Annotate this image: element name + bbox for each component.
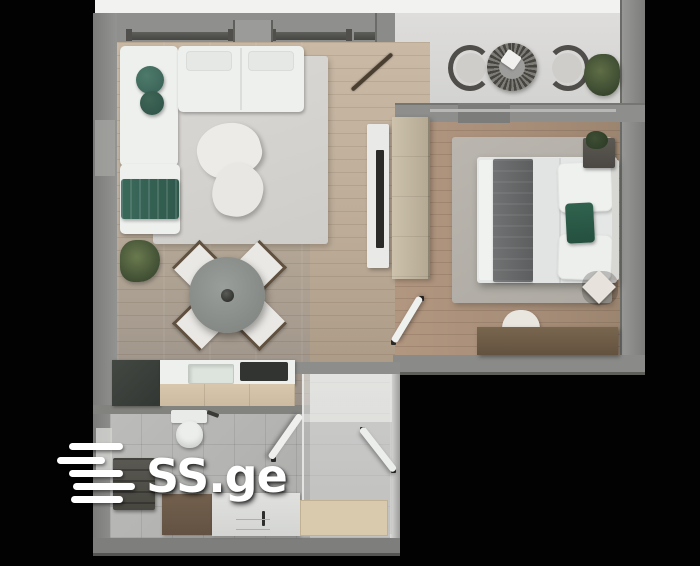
foot-bench <box>477 327 618 355</box>
watermark-text: SS.ge <box>146 449 287 503</box>
wall-bottom <box>93 538 400 556</box>
green-cushion <box>136 66 164 94</box>
window-post <box>126 29 132 41</box>
sofa-cushion <box>248 51 294 71</box>
window-sill-mid <box>276 32 348 40</box>
tv-screen <box>376 150 384 248</box>
wall-right <box>620 0 645 372</box>
lounge-chair-right-seat <box>552 53 582 83</box>
wall-balcony-step <box>458 103 510 123</box>
speed-lines-icon <box>69 470 123 477</box>
headboard <box>612 160 619 280</box>
nightstand-plant <box>586 131 608 149</box>
floor-plan-render: SS.ge <box>0 0 700 566</box>
radiator-panel <box>95 120 115 176</box>
cooktop <box>240 362 288 381</box>
wall-balcony-bottom <box>395 103 645 122</box>
shower-tray <box>300 500 388 536</box>
window-post <box>346 29 352 41</box>
outer-white-band <box>95 0 622 13</box>
toilet-bowl <box>176 421 203 448</box>
sofa-seam <box>240 48 242 110</box>
bath-shelf <box>96 428 112 474</box>
speed-lines-icon <box>57 457 105 464</box>
table-centerpiece <box>221 289 234 302</box>
green-pillow <box>565 202 595 243</box>
balcony-plant <box>584 54 620 96</box>
sofa-cushion <box>186 51 232 71</box>
window-track-balcony <box>430 109 616 112</box>
kitchen-sink <box>188 364 234 384</box>
wardrobe <box>392 117 430 279</box>
kitchen-cabinet-front <box>160 384 295 406</box>
green-throw-blanket <box>121 179 179 219</box>
speed-lines-icon <box>71 496 123 503</box>
wall-bedroom-bottom <box>393 355 645 375</box>
speed-lines-icon <box>73 483 135 490</box>
speed-lines-icon <box>69 443 123 450</box>
window-sill-left <box>130 32 228 40</box>
green-cushion <box>140 91 164 115</box>
kitchen-tall-cabinet <box>112 360 160 406</box>
lounge-chair-left-seat <box>456 53 486 83</box>
wall-shower-top <box>295 362 400 374</box>
bed-gray-blanket <box>493 159 533 282</box>
counter-sink-marks <box>236 519 270 530</box>
